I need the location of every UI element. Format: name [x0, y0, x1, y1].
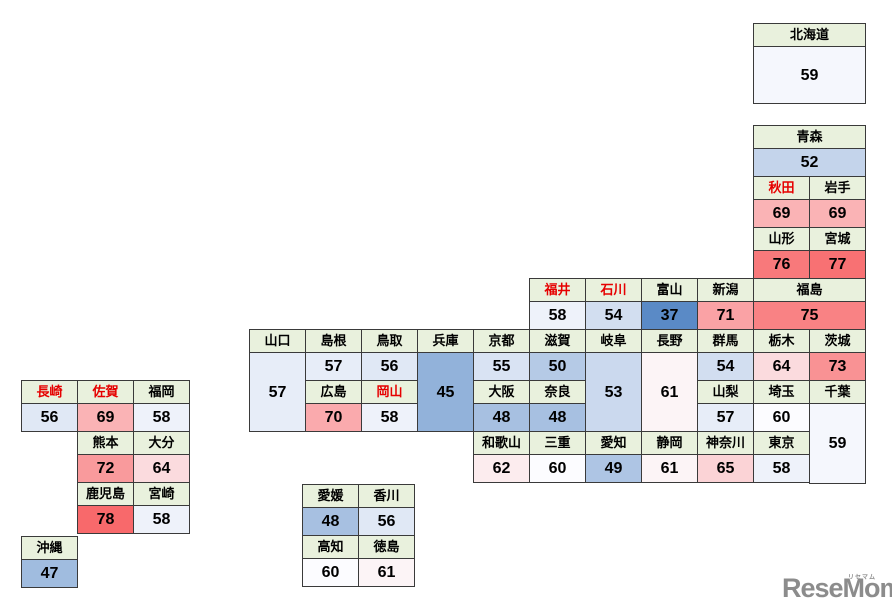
- pref-shizuoka-name: 静岡: [641, 431, 698, 455]
- pref-gifu-name: 岐阜: [585, 329, 642, 353]
- pref-fukuoka-value: 58: [133, 403, 190, 432]
- pref-toyama-value: 37: [641, 301, 698, 330]
- pref-hokkaido-value: 59: [753, 46, 866, 104]
- pref-akita-value: 69: [753, 199, 810, 228]
- pref-gifu-value: 53: [585, 352, 642, 432]
- pref-okayama-name: 岡山: [361, 380, 418, 404]
- pref-hokkaido-name: 北海道: [753, 23, 866, 47]
- pref-nagasaki-name: 長崎: [21, 380, 78, 404]
- japan-prefecture-tile-map: リセマム ReseMom. 北海道59青森52秋田69岩手69山形76宮城77福…: [0, 0, 892, 611]
- pref-chiba-name: 千葉: [809, 380, 866, 404]
- pref-toyama-name: 富山: [641, 278, 698, 302]
- pref-hyogo-value: 45: [417, 352, 474, 432]
- pref-shiga-name: 滋賀: [529, 329, 586, 353]
- pref-ibaraki-value: 73: [809, 352, 866, 381]
- pref-tottori-value: 56: [361, 352, 418, 381]
- pref-oita-name: 大分: [133, 431, 190, 455]
- pref-aichi-name: 愛知: [585, 431, 642, 455]
- pref-aomori-name: 青森: [753, 125, 866, 149]
- pref-kochi-name: 高知: [302, 535, 359, 559]
- pref-yamanashi-value: 57: [697, 403, 754, 432]
- pref-nagano-name: 長野: [641, 329, 698, 353]
- pref-yamaguchi-value: 57: [249, 352, 306, 432]
- pref-wakayama-value: 62: [473, 454, 530, 483]
- pref-iwate-value: 69: [809, 199, 866, 228]
- pref-kagawa-name: 香川: [358, 484, 415, 508]
- pref-nara-value: 48: [529, 403, 586, 432]
- pref-kochi-value: 60: [302, 558, 359, 587]
- pref-miyagi-name: 宮城: [809, 227, 866, 251]
- pref-nagasaki-value: 56: [21, 403, 78, 432]
- pref-aichi-value: 49: [585, 454, 642, 483]
- pref-tochigi-value: 64: [753, 352, 810, 381]
- pref-hiroshima-name: 広島: [305, 380, 362, 404]
- pref-akita-name: 秋田: [753, 176, 810, 200]
- pref-saga-name: 佐賀: [77, 380, 134, 404]
- pref-ehime-name: 愛媛: [302, 484, 359, 508]
- pref-nara-name: 奈良: [529, 380, 586, 404]
- pref-fukui-value: 58: [529, 301, 586, 330]
- pref-hyogo-name: 兵庫: [417, 329, 474, 353]
- pref-saitama-name: 埼玉: [753, 380, 810, 404]
- pref-yamanashi-name: 山梨: [697, 380, 754, 404]
- pref-niigata-value: 71: [697, 301, 754, 330]
- pref-mie-name: 三重: [529, 431, 586, 455]
- pref-kagoshima-value: 78: [77, 505, 134, 534]
- pref-chiba-value: 59: [809, 403, 866, 484]
- pref-osaka-value: 48: [473, 403, 530, 432]
- pref-yamaguchi-name: 山口: [249, 329, 306, 353]
- resemom-logo-text: ReseMom.: [782, 575, 892, 602]
- pref-miyazaki-value: 58: [133, 505, 190, 534]
- pref-kumamoto-value: 72: [77, 454, 134, 483]
- pref-wakayama-name: 和歌山: [473, 431, 530, 455]
- resemom-logo: リセマム ReseMom.: [782, 572, 890, 606]
- pref-fukuoka-name: 福岡: [133, 380, 190, 404]
- pref-kagawa-value: 56: [358, 507, 415, 536]
- pref-osaka-name: 大阪: [473, 380, 530, 404]
- pref-hiroshima-value: 70: [305, 403, 362, 432]
- pref-oita-value: 64: [133, 454, 190, 483]
- pref-tokushima-name: 徳島: [358, 535, 415, 559]
- pref-shimane-value: 57: [305, 352, 362, 381]
- pref-okayama-value: 58: [361, 403, 418, 432]
- pref-fukui-name: 福井: [529, 278, 586, 302]
- pref-okinawa-name: 沖縄: [21, 536, 78, 560]
- pref-niigata-name: 新潟: [697, 278, 754, 302]
- pref-miyazaki-name: 宮崎: [133, 482, 190, 506]
- pref-yamagata-value: 76: [753, 250, 810, 279]
- pref-kanagawa-name: 神奈川: [697, 431, 754, 455]
- pref-nagano-value: 61: [641, 352, 698, 432]
- pref-kanagawa-value: 65: [697, 454, 754, 483]
- pref-ishikawa-value: 54: [585, 301, 642, 330]
- pref-tokyo-value: 58: [753, 454, 810, 483]
- pref-tottori-name: 鳥取: [361, 329, 418, 353]
- pref-aomori-value: 52: [753, 148, 866, 177]
- pref-gunma-name: 群馬: [697, 329, 754, 353]
- pref-kyoto-value: 55: [473, 352, 530, 381]
- pref-ehime-value: 48: [302, 507, 359, 536]
- pref-saitama-value: 60: [753, 403, 810, 432]
- pref-mie-value: 60: [529, 454, 586, 483]
- pref-saga-value: 69: [77, 403, 134, 432]
- pref-ishikawa-name: 石川: [585, 278, 642, 302]
- pref-shiga-value: 50: [529, 352, 586, 381]
- pref-shizuoka-value: 61: [641, 454, 698, 483]
- pref-gunma-value: 54: [697, 352, 754, 381]
- pref-iwate-name: 岩手: [809, 176, 866, 200]
- pref-fukushima-value: 75: [753, 301, 866, 330]
- pref-ibaraki-name: 茨城: [809, 329, 866, 353]
- pref-kyoto-name: 京都: [473, 329, 530, 353]
- pref-shimane-name: 島根: [305, 329, 362, 353]
- pref-tochigi-name: 栃木: [753, 329, 810, 353]
- pref-miyagi-value: 77: [809, 250, 866, 279]
- pref-okinawa-value: 47: [21, 559, 78, 588]
- pref-tokyo-name: 東京: [753, 431, 810, 455]
- pref-tokushima-value: 61: [358, 558, 415, 587]
- pref-yamagata-name: 山形: [753, 227, 810, 251]
- pref-kumamoto-name: 熊本: [77, 431, 134, 455]
- pref-fukushima-name: 福島: [753, 278, 866, 302]
- pref-kagoshima-name: 鹿児島: [77, 482, 134, 506]
